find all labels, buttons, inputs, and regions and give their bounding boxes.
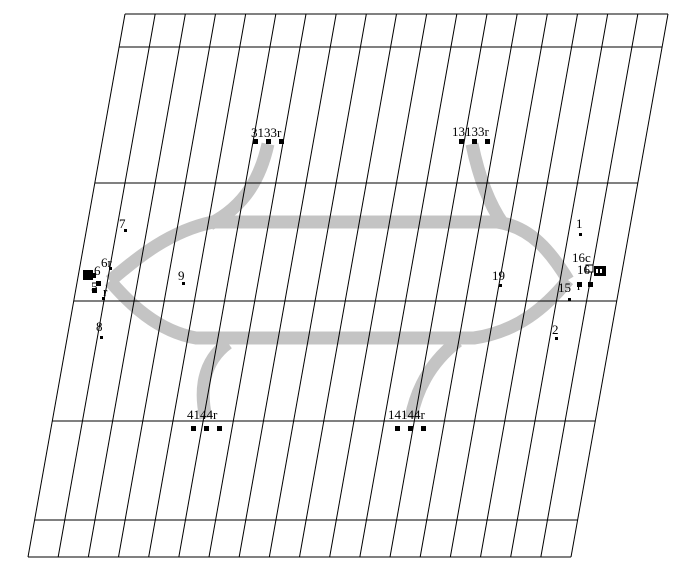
endpoint-marker-square	[191, 426, 196, 431]
grid-line-vertical	[571, 14, 668, 557]
point-dot	[579, 233, 582, 236]
symbol-grid-pip	[596, 269, 598, 273]
diagram-label: 4144r	[187, 407, 218, 422]
endpoint-marker-square	[472, 139, 477, 144]
diagram-canvas[interactable]: 3133r13133r4144r14144r71919826r65r16c161…	[0, 0, 686, 570]
grid-line-vertical	[390, 14, 487, 557]
grid-line-vertical	[420, 14, 517, 557]
endpoint-marker-square	[217, 426, 222, 431]
diagram-label: 5	[91, 279, 98, 294]
point-dot	[499, 284, 502, 287]
grid-line-vertical	[209, 14, 306, 557]
diagram-label: 6	[94, 263, 101, 278]
grid-line-vertical	[269, 14, 366, 557]
diagram-label: r	[577, 278, 582, 293]
endpoint-marker-square	[395, 426, 400, 431]
lower-loop-track	[110, 280, 568, 338]
grid-line-vertical	[239, 14, 336, 557]
grid-line-vertical	[179, 14, 276, 557]
grid-layer	[28, 14, 668, 557]
grid-line-vertical	[360, 14, 457, 557]
endpoint-marker-square	[459, 139, 464, 144]
diagram-label: 14144r	[388, 407, 426, 422]
diagram-label: r	[103, 284, 108, 299]
grid-line-vertical	[330, 14, 427, 557]
diagram-label: 15	[558, 280, 571, 295]
diagram-label: 9	[178, 268, 185, 283]
diagram-label: 3133r	[251, 125, 282, 140]
diagram-label: 8	[96, 319, 103, 334]
point-dot	[555, 337, 558, 340]
point-dot	[100, 336, 103, 339]
ramp-top-right	[472, 144, 503, 224]
symbol-grid-pip	[600, 269, 602, 273]
label-layer: 3133r13133r4144r14144r71919826r65r16c161…	[91, 124, 591, 422]
endpoint-marker-square	[408, 426, 413, 431]
grid-line-vertical	[119, 14, 216, 557]
diagram-stage: 3133r13133r4144r14144r71919826r65r16c161…	[0, 0, 686, 570]
endpoint-marker-square	[588, 282, 593, 287]
point-dot	[568, 298, 571, 301]
grid-line-vertical	[300, 14, 397, 557]
grid-line-vertical	[450, 14, 547, 557]
endpoint-marker-square	[204, 426, 209, 431]
grid-line-vertical	[149, 14, 246, 557]
ramp-top-left	[210, 144, 268, 224]
diagram-label: 1	[576, 216, 583, 231]
endpoint-marker-square	[421, 426, 426, 431]
endpoint-marker-square	[485, 139, 490, 144]
diagram-label: 2	[552, 322, 559, 337]
diagram-label: 16	[577, 262, 591, 277]
diagram-label: 19	[492, 268, 505, 283]
diagram-label: 6r	[101, 255, 113, 270]
diagram-label: 7	[119, 216, 126, 231]
diagram-label: 13133r	[452, 124, 490, 139]
